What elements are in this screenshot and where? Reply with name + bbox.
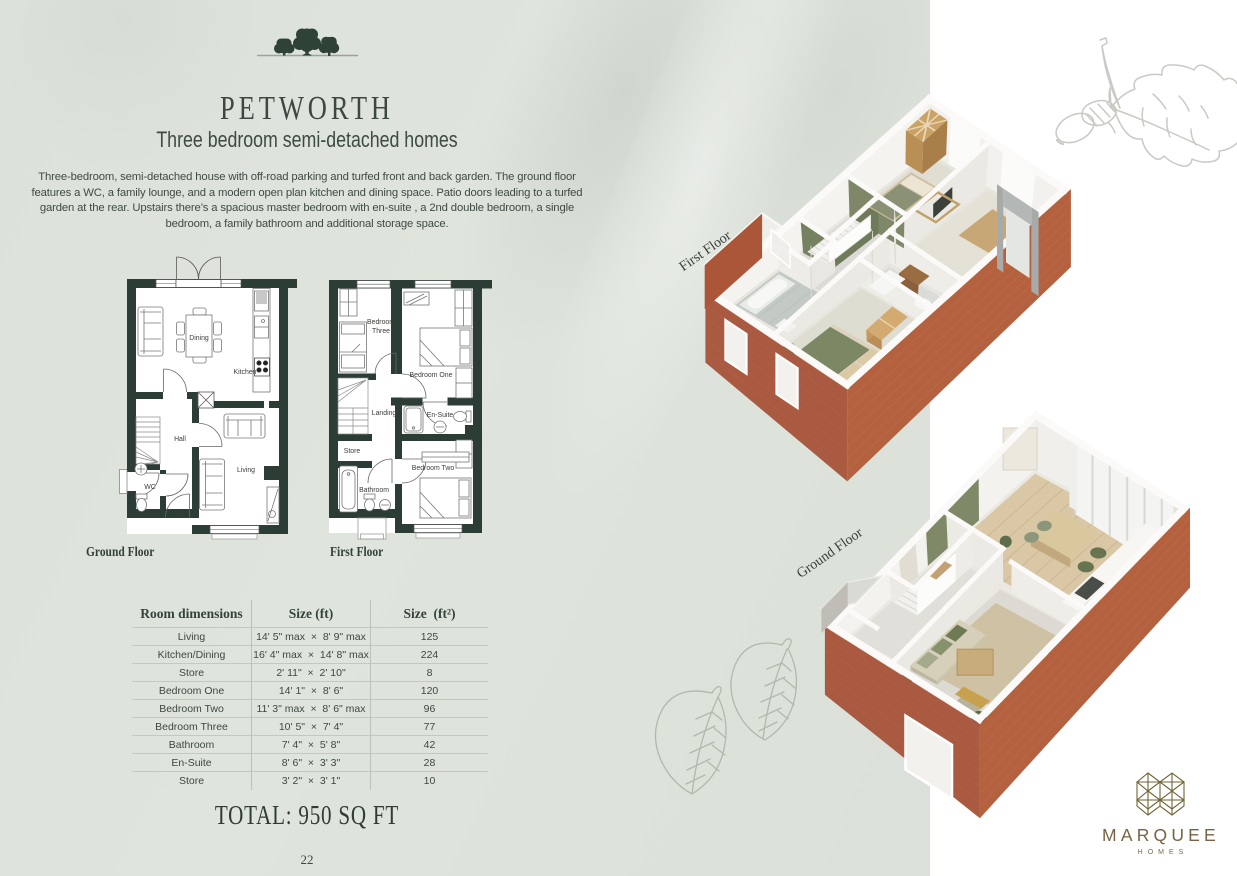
svg-text:MARQUEE: MARQUEE bbox=[1102, 825, 1220, 845]
svg-text:HOMES: HOMES bbox=[1138, 849, 1189, 856]
